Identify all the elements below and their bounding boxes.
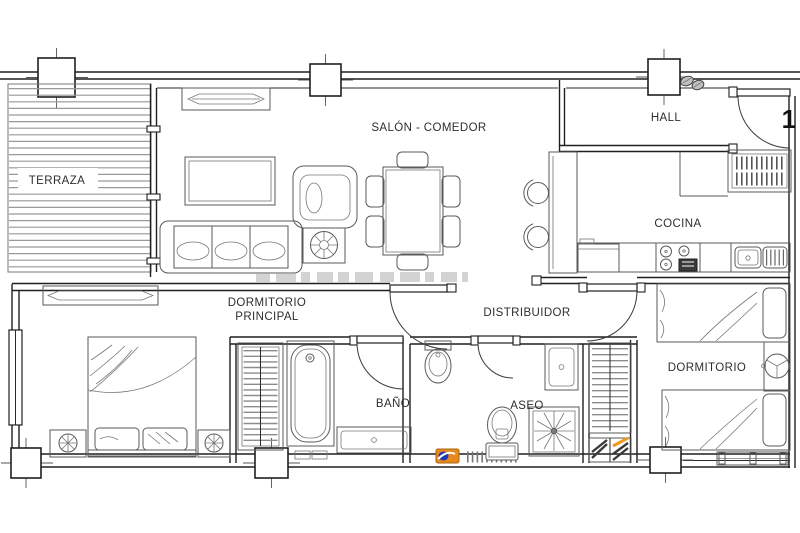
column xyxy=(38,58,75,97)
salon-furniture xyxy=(160,88,549,273)
single-bed-bottom xyxy=(662,390,790,450)
dining-chair xyxy=(366,216,384,247)
label-distribuidor: DISTRIBUIDOR xyxy=(483,307,570,319)
label-dormitorio-principal-2: PRINCIPAL xyxy=(235,311,299,323)
pillow xyxy=(143,428,187,450)
label-salon-comedor: SALÓN - COMEDOR xyxy=(371,121,486,134)
sofa xyxy=(160,221,302,273)
label-terraza: TERRAZA xyxy=(29,175,85,187)
dining-chair xyxy=(442,216,460,247)
shoe-cabinet xyxy=(589,438,631,462)
aseo-door xyxy=(478,336,513,378)
bedroom-door xyxy=(587,284,637,341)
label-hall: HALL xyxy=(651,112,682,124)
vanity-sink xyxy=(337,427,411,453)
kitchen xyxy=(549,150,791,273)
washbasin xyxy=(545,344,578,390)
nightstand xyxy=(762,342,791,391)
label-aseo: ASEO xyxy=(510,400,544,412)
wardrobe xyxy=(589,343,631,433)
column xyxy=(255,448,288,478)
column xyxy=(310,64,341,96)
counter-corner xyxy=(680,152,728,196)
bedroom2 xyxy=(657,284,790,465)
pillow xyxy=(763,288,786,338)
double-bed xyxy=(88,337,196,457)
column xyxy=(11,448,41,478)
label-dormitorio: DORMITORIO xyxy=(668,362,747,374)
column xyxy=(648,59,680,95)
stove xyxy=(656,243,700,272)
window-radiator xyxy=(182,88,270,110)
floorplan-page: TERRAZA SALÓN - COMEDOR HALL COCINA DORM… xyxy=(0,0,800,533)
bathroom-door xyxy=(357,336,403,389)
left-window xyxy=(9,330,22,425)
nightstand xyxy=(50,430,86,457)
bidet xyxy=(425,341,451,383)
coffee-table xyxy=(185,157,275,205)
aseo xyxy=(467,343,631,462)
label-bano: BAÑO xyxy=(376,397,410,410)
unit-number: 1 xyxy=(782,104,797,134)
fridge xyxy=(578,239,619,272)
columns xyxy=(1,48,705,488)
dish-rack xyxy=(728,150,791,192)
label-dormitorio-principal-1: DORMITORIO xyxy=(228,297,307,309)
dining-chair xyxy=(366,176,384,207)
armchair xyxy=(293,166,357,228)
pillow xyxy=(763,394,786,446)
dining-chair xyxy=(397,152,428,168)
nightstand xyxy=(198,430,230,457)
toilet xyxy=(486,407,518,460)
floorplan-drawing: TERRAZA SALÓN - COMEDOR HALL COCINA DORM… xyxy=(0,0,800,533)
dining-chair xyxy=(442,176,460,207)
label-cocina: COCINA xyxy=(654,218,701,230)
side-table-fan xyxy=(303,228,345,263)
bar-stools xyxy=(524,180,549,250)
room-labels: TERRAZA SALÓN - COMEDOR HALL COCINA DORM… xyxy=(29,104,797,412)
column xyxy=(650,447,681,473)
window-radiator xyxy=(43,286,158,305)
kitchen-sink xyxy=(731,243,790,272)
shower xyxy=(529,407,579,456)
dining-table xyxy=(366,152,460,270)
master-bedroom xyxy=(9,286,230,457)
single-bed-top xyxy=(657,284,790,342)
brand-logo xyxy=(436,449,459,463)
wardrobe xyxy=(238,343,283,450)
dining-chair xyxy=(397,254,428,270)
bathtub xyxy=(287,341,334,459)
